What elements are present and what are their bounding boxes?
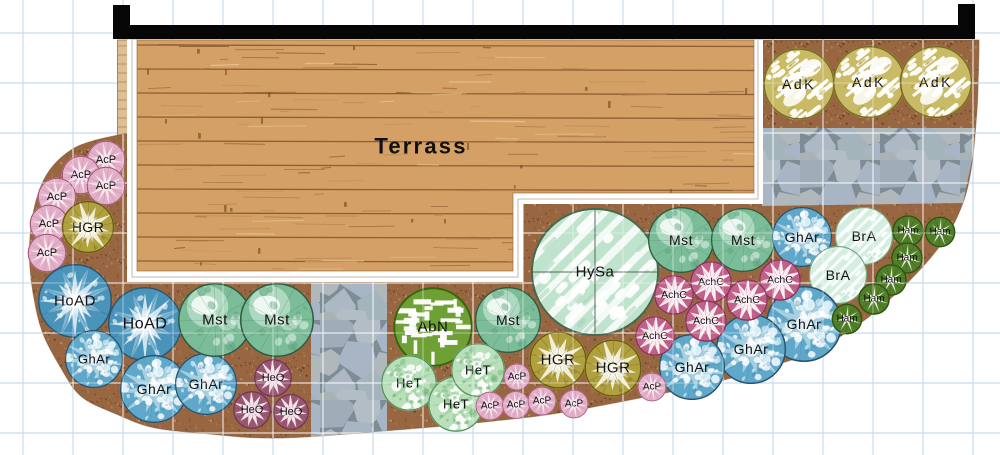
svg-text:Mst: Mst	[202, 312, 228, 329]
svg-text:AdK: AdK	[852, 74, 886, 90]
svg-text:GhAr: GhAr	[787, 316, 822, 332]
svg-text:GhAr: GhAr	[675, 359, 710, 375]
svg-text:HeT: HeT	[443, 397, 469, 412]
svg-text:AchC: AchC	[698, 276, 724, 288]
svg-text:AchC: AchC	[661, 289, 687, 301]
svg-text:HeO: HeO	[241, 404, 264, 416]
svg-text:HoAD: HoAD	[54, 293, 96, 310]
svg-text:HoAD: HoAD	[123, 316, 168, 333]
svg-text:AcP: AcP	[39, 218, 59, 230]
svg-text:AchC: AchC	[693, 315, 719, 327]
svg-text:AdK: AdK	[919, 74, 953, 90]
svg-text:Mst: Mst	[731, 232, 755, 248]
svg-text:Ham: Ham	[880, 275, 901, 286]
svg-text:AdK: AdK	[782, 76, 816, 92]
svg-text:Mst: Mst	[496, 312, 520, 328]
svg-text:GhAr: GhAr	[785, 229, 820, 245]
svg-text:AcP: AcP	[37, 247, 57, 259]
svg-text:Ham: Ham	[863, 294, 884, 305]
svg-text:AcP: AcP	[565, 399, 584, 410]
svg-text:Ham: Ham	[896, 253, 917, 264]
svg-text:AcP: AcP	[96, 154, 116, 166]
svg-text:AcP: AcP	[508, 372, 527, 383]
svg-text:AcP: AcP	[96, 180, 116, 192]
svg-text:AcP: AcP	[533, 396, 552, 407]
svg-text:AcP: AcP	[47, 191, 67, 203]
svg-text:HeT: HeT	[465, 363, 491, 378]
svg-text:HeO: HeO	[280, 406, 303, 418]
svg-text:BrA: BrA	[826, 267, 851, 283]
svg-text:Ham: Ham	[836, 314, 857, 325]
svg-text:GhAr: GhAr	[189, 376, 224, 392]
svg-text:Mst: Mst	[264, 312, 290, 329]
svg-text:GhAr: GhAr	[78, 352, 111, 367]
svg-text:AcP: AcP	[481, 401, 500, 412]
svg-text:AchC: AchC	[734, 294, 760, 306]
svg-text:HGR: HGR	[541, 352, 576, 369]
svg-text:Terrass: Terrass	[374, 134, 467, 159]
svg-text:GhAr: GhAr	[734, 341, 769, 357]
svg-text:Ham: Ham	[929, 227, 950, 238]
svg-text:Ham: Ham	[897, 226, 918, 237]
svg-text:AchC: AchC	[642, 330, 668, 342]
svg-text:HySa: HySa	[576, 264, 615, 281]
svg-text:AchC: AchC	[767, 274, 793, 286]
svg-text:HGR: HGR	[596, 360, 631, 377]
